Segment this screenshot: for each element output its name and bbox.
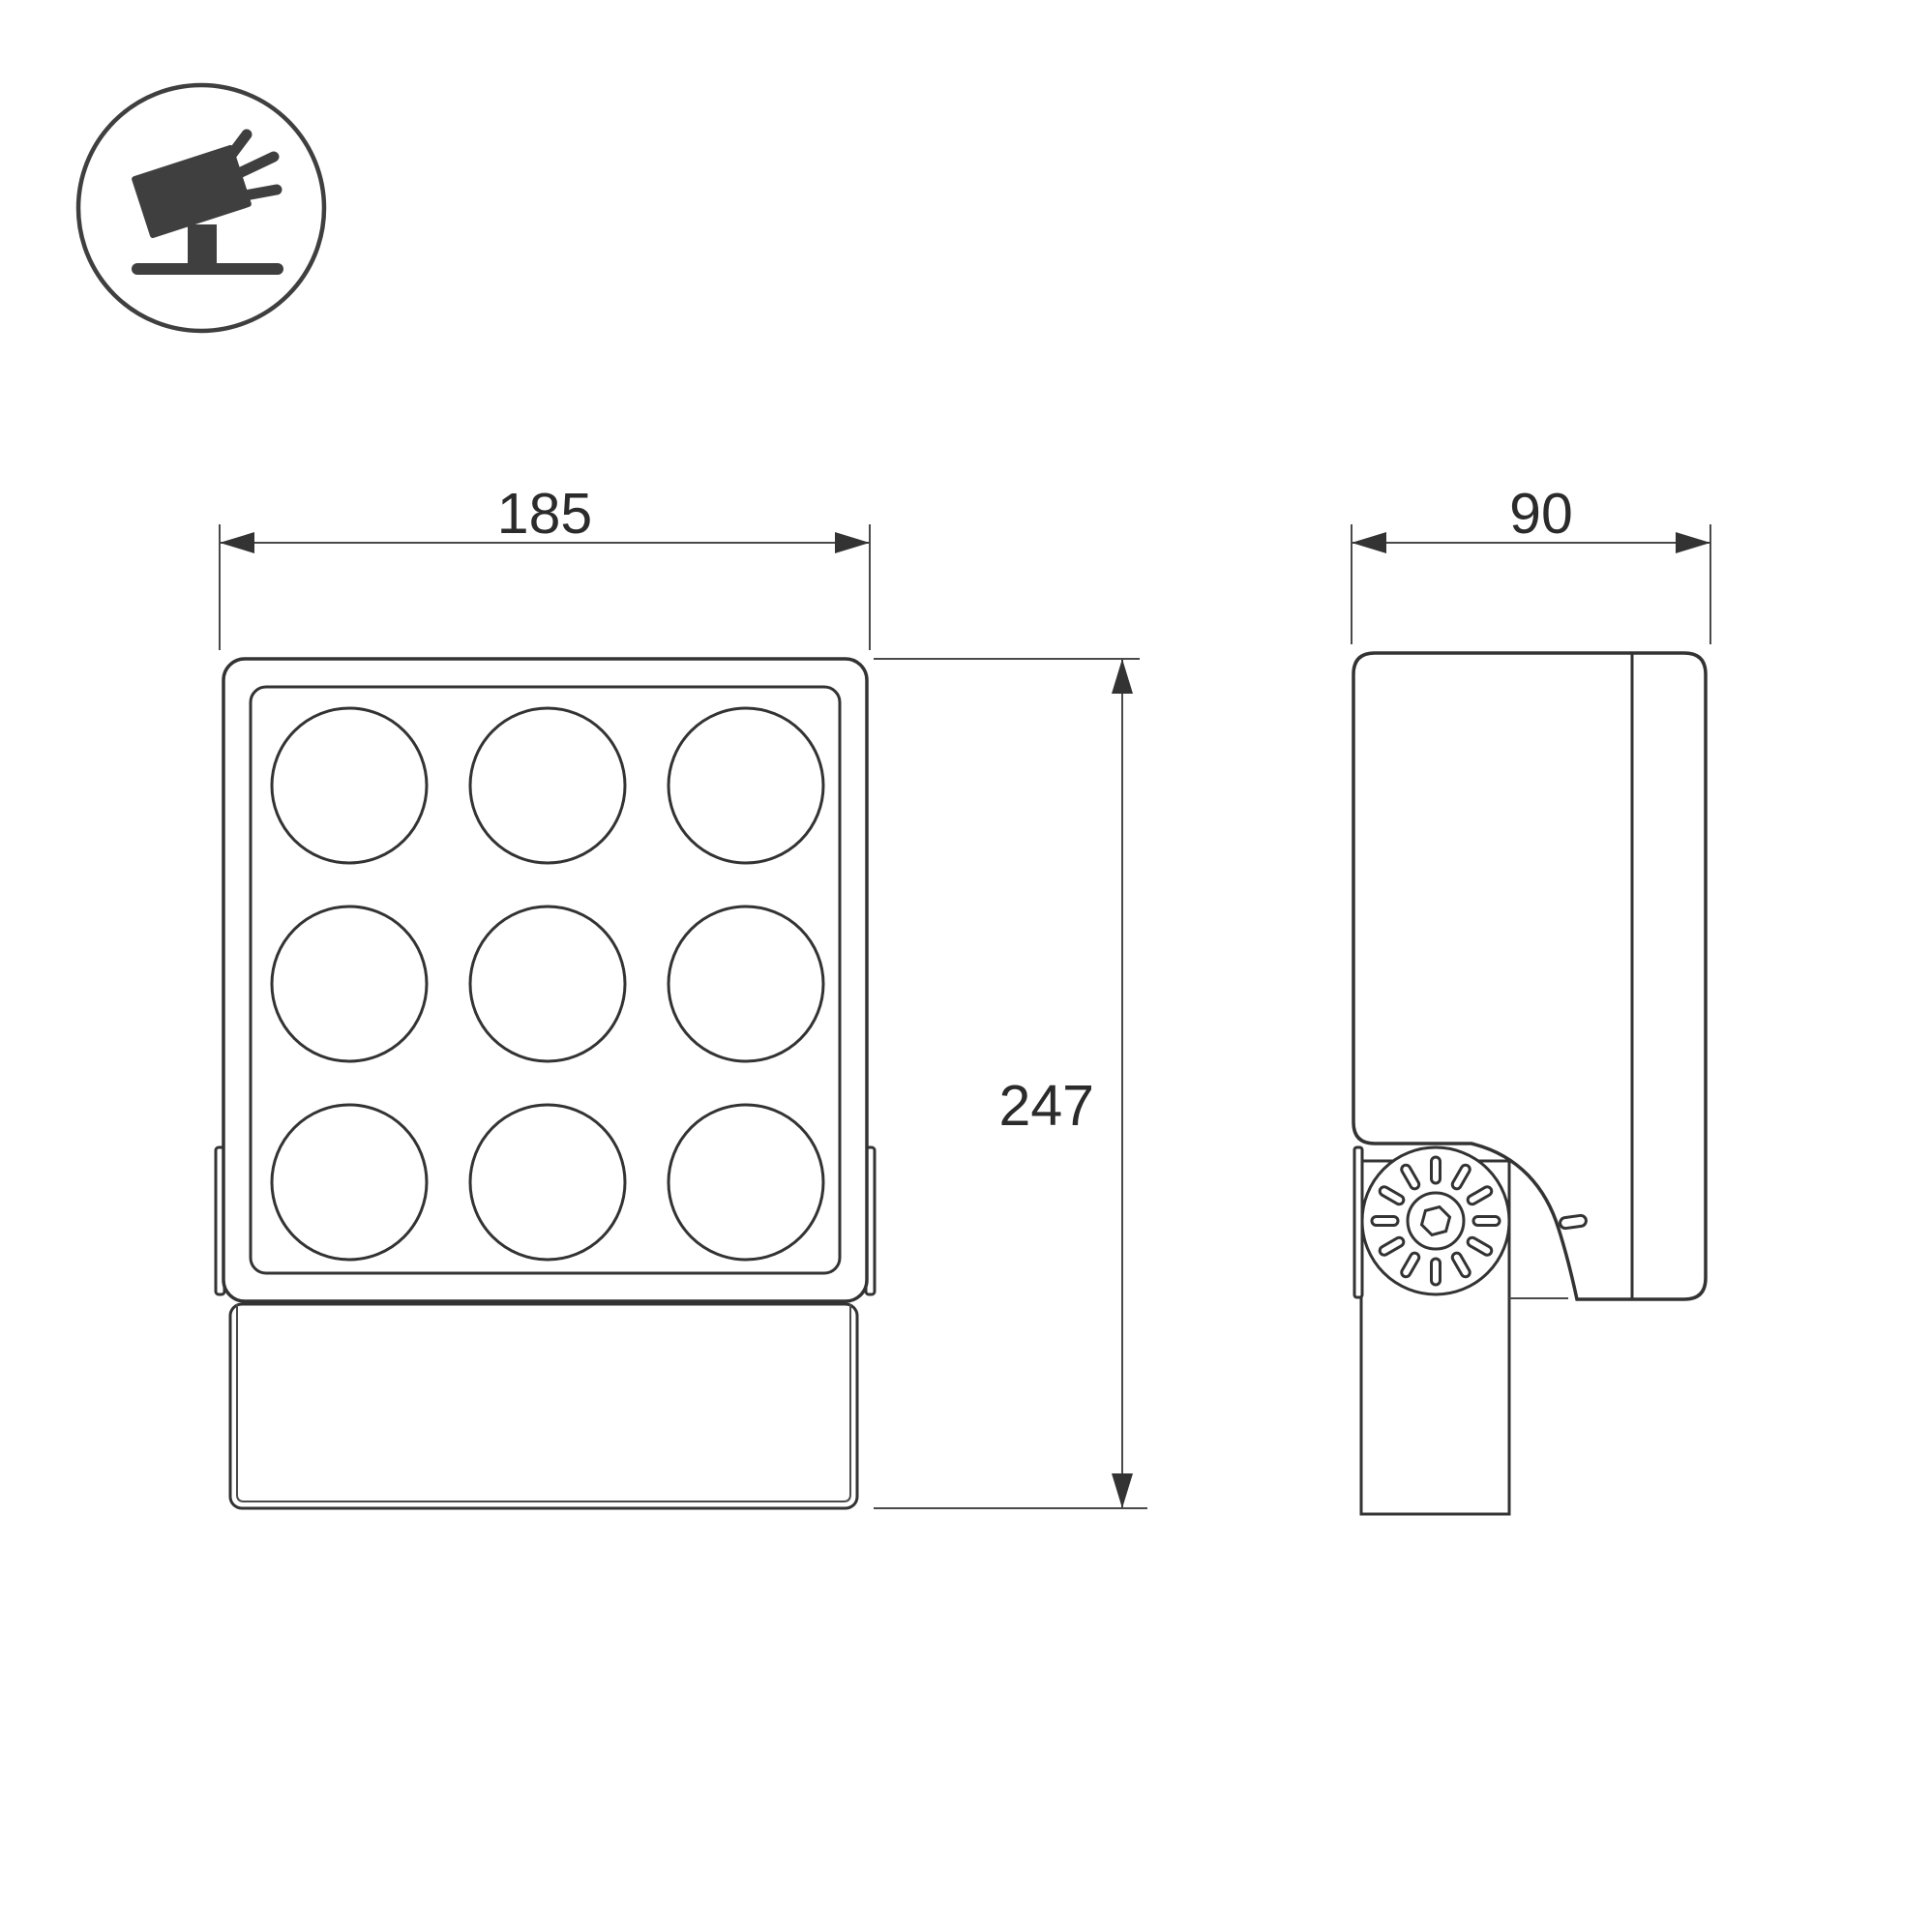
technical-drawing-canvas: 185 90 247	[0, 0, 1932, 1932]
side-pivot-knob	[1362, 1147, 1509, 1294]
lens	[669, 907, 823, 1061]
technical-drawing-page: 185 90 247	[0, 0, 1932, 1932]
lens	[669, 1105, 823, 1260]
lens	[272, 708, 427, 863]
icon-lamp-post	[188, 224, 217, 269]
dimension-label-247: 247	[999, 1074, 1094, 1138]
front-view	[216, 659, 875, 1508]
side-bracket-slot	[1560, 1215, 1587, 1230]
dimension-label-185: 185	[497, 482, 592, 546]
knob-hex-socket-screw	[1422, 1207, 1450, 1235]
arrowhead-top	[1112, 659, 1133, 694]
dimension-label-90: 90	[1509, 482, 1573, 546]
lens	[470, 1105, 625, 1260]
dimension-front-height: 247	[874, 659, 1147, 1508]
dimension-side-depth: 90	[1352, 482, 1710, 644]
arrowhead-left	[1352, 532, 1386, 553]
lens	[272, 907, 427, 1061]
side-view	[1353, 653, 1706, 1514]
lens	[470, 907, 625, 1061]
arrowhead-right	[835, 532, 870, 553]
arrowhead-right	[1676, 532, 1710, 553]
lens	[669, 708, 823, 863]
floodlight-icon	[78, 85, 324, 331]
front-lens-array	[272, 708, 823, 1260]
lens	[272, 1105, 427, 1260]
lens	[470, 708, 625, 863]
arrowhead-bottom	[1112, 1473, 1133, 1508]
front-lower-body	[230, 1304, 857, 1508]
arrowhead-left	[220, 532, 254, 553]
dimension-front-width: 185	[220, 482, 870, 650]
